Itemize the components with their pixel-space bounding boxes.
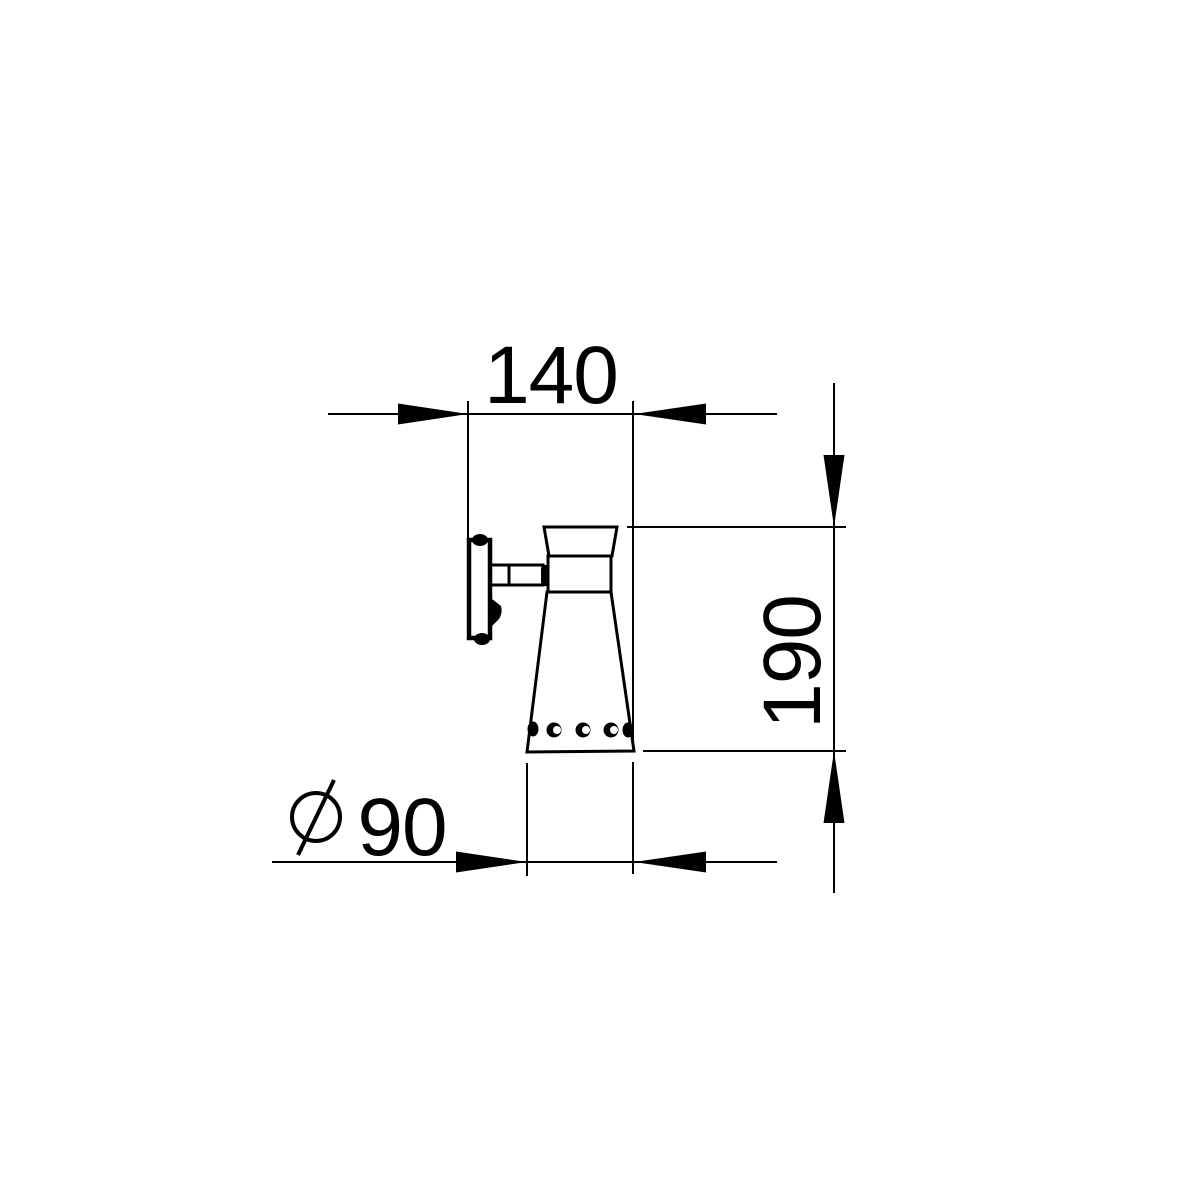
diameter-arrow-right-icon bbox=[634, 852, 706, 873]
arm-tube bbox=[490, 565, 543, 585]
width-dimension-value: 140 bbox=[484, 330, 618, 421]
wall-plate-body bbox=[469, 540, 490, 638]
vent-hole bbox=[547, 723, 562, 738]
wall-plate-bottom-screw bbox=[474, 633, 490, 645]
shade-upper-cup bbox=[544, 527, 617, 556]
vent-hole bbox=[528, 722, 539, 737]
diameter-dimension: 90 bbox=[272, 762, 777, 876]
width-arrow-left-icon bbox=[398, 404, 468, 425]
height-arrow-bottom-icon bbox=[824, 751, 845, 823]
technical-drawing-canvas: 140 190 90 bbox=[0, 0, 1200, 1200]
vent-hole bbox=[604, 723, 619, 738]
vent-hole bbox=[623, 723, 634, 738]
shade-middle-band bbox=[548, 556, 611, 592]
wall-lamp-drawing bbox=[469, 527, 634, 752]
diameter-symbol-icon bbox=[292, 780, 340, 855]
height-dimension-value: 190 bbox=[747, 595, 838, 729]
wall-plate bbox=[469, 534, 502, 645]
height-arrow-top-icon bbox=[824, 455, 845, 527]
wall-lamp-dimension-drawing: 140 190 90 bbox=[0, 0, 1200, 1200]
width-arrow-right-icon bbox=[634, 404, 706, 425]
diameter-dimension-value: 90 bbox=[357, 782, 446, 873]
lamp-arm bbox=[490, 565, 551, 586]
height-dimension: 190 bbox=[627, 383, 846, 893]
wall-plate-top-screw bbox=[472, 534, 488, 546]
switch-lever bbox=[492, 599, 502, 626]
vent-hole bbox=[576, 723, 591, 738]
diameter-arrow-left-icon bbox=[456, 852, 527, 873]
